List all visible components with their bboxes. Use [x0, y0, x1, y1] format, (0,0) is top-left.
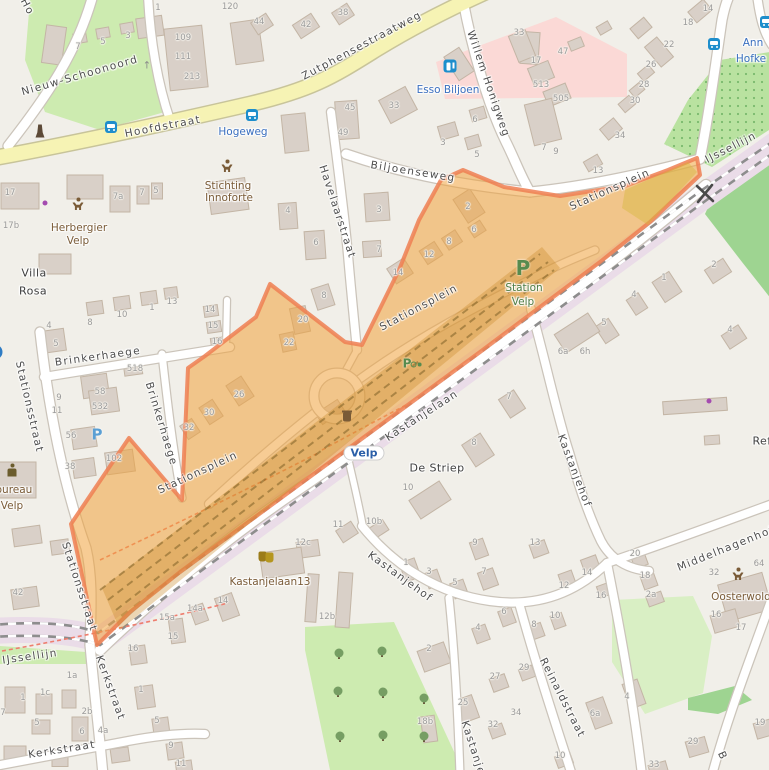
house-number: 6 — [472, 116, 477, 125]
house-number: 6 — [471, 226, 476, 235]
house-number: 7 — [376, 246, 381, 255]
arrow-up-icon — [143, 54, 151, 73]
poi-label-herbergier: Herbergier — [51, 223, 107, 234]
house-number: 12c — [295, 539, 311, 548]
house-number: 44 — [254, 18, 265, 27]
parking-blue-icon — [92, 425, 103, 444]
house-number: 42 — [13, 589, 24, 598]
house-number: 32 — [184, 424, 195, 433]
transit-label-esso-biljoen: Esso Biljoen — [417, 85, 480, 96]
house-number: 29 — [519, 664, 530, 673]
house-number: 5 — [474, 151, 479, 160]
transit-label-hogeweg: Hogeweg — [218, 127, 267, 138]
house-number: 26 — [234, 391, 245, 400]
house-number: 12 — [559, 582, 570, 591]
map-label-velp: Velp — [512, 297, 534, 308]
house-number: 16 — [212, 338, 223, 347]
house-number: 1a — [67, 672, 78, 681]
map-label-brinkerhaege: Brinkerhaege — [143, 381, 178, 467]
map-label-stationsplein: Stationsplein — [378, 283, 459, 333]
map-label-kastanjehof: Kastanjehof — [366, 550, 435, 604]
house-number: 16 — [711, 611, 722, 620]
house-number: 12 — [424, 251, 435, 260]
house-number: 58 — [95, 388, 106, 397]
map-label-kerkstraat: Kerkstraat — [93, 654, 126, 722]
map-label-havelaarstraat: Havelaarstraat — [317, 164, 357, 260]
house-number: 518 — [127, 365, 143, 374]
bus-icon — [760, 16, 769, 28]
house-number: 4 — [624, 693, 629, 702]
house-number: 14a — [187, 605, 203, 614]
map-label-ijssellijn: IJssellijn — [2, 648, 59, 666]
house-number: 6a — [590, 710, 601, 719]
map-label-zutphensestraatweg: Zutphensestraatweg — [300, 10, 423, 82]
house-number: 1c — [40, 689, 50, 698]
bin-icon — [343, 413, 351, 422]
theater-icon — [259, 552, 274, 563]
label-layer: HoNieuw-SchoonoordHoofdstraatZutphensest… — [0, 0, 769, 770]
parking-circle-icon — [0, 345, 3, 360]
transit-label-ann: Ann — [743, 38, 764, 49]
house-number: 6 — [313, 239, 318, 248]
dot-purple-icon — [707, 399, 712, 404]
house-number: 120 — [222, 3, 238, 12]
house-number: 13 — [530, 539, 541, 548]
house-number: 32 — [709, 569, 720, 578]
house-number: 8 — [471, 439, 476, 448]
house-number: 11 — [176, 760, 187, 769]
map-label-stationsplein: Stationsplein — [568, 168, 651, 213]
bus-icon — [708, 38, 720, 50]
house-number: 10 — [117, 311, 128, 320]
house-number: 7 — [506, 393, 511, 402]
house-number: 16 — [128, 645, 139, 654]
house-number: 2 — [465, 203, 470, 212]
map-label-reinaldstraat: Reinaldstraat — [537, 656, 586, 739]
house-number: 7 — [541, 144, 546, 153]
house-number: 8 — [321, 292, 326, 301]
house-number: 17 — [5, 189, 16, 198]
person-icon — [221, 160, 234, 173]
parking-green-icon — [516, 256, 531, 280]
person-icon — [72, 198, 85, 211]
bus-icon — [105, 121, 117, 133]
map-label-station: Station — [505, 283, 542, 294]
house-number: 10 — [403, 484, 414, 493]
house-number: 1 — [661, 274, 666, 283]
house-number: 30 — [630, 97, 641, 106]
house-number: 6 — [79, 728, 84, 737]
house-number: 7a — [113, 193, 124, 202]
house-number: 2 — [711, 261, 716, 270]
house-number: 5 — [601, 319, 606, 328]
house-number: 5 — [154, 717, 159, 726]
house-number: 38 — [338, 9, 349, 18]
house-number: 5 — [100, 38, 105, 47]
map-label-stationsstraat: Stationsstraat — [13, 360, 44, 453]
house-number: 102 — [106, 455, 122, 464]
house-number: 3 — [426, 568, 431, 577]
bike-parking-icon — [403, 353, 412, 372]
house-number: 49 — [338, 129, 349, 138]
house-number: 11 — [52, 407, 63, 416]
map-label-de-striep: De Striep — [410, 463, 465, 474]
map-label-b: B — [715, 750, 728, 762]
house-number: 6a — [558, 348, 569, 357]
monument-icon — [36, 125, 45, 138]
house-number: 17b — [3, 222, 19, 231]
house-number: 213 — [184, 73, 200, 82]
house-number: 14 — [703, 5, 714, 14]
house-number: 8 — [87, 319, 92, 328]
house-number: 2b — [82, 708, 93, 717]
house-number: 3 — [125, 32, 130, 41]
poi-label-innoforte: Innoforte — [205, 193, 253, 204]
house-number: 14 — [218, 597, 229, 606]
house-number: 505 — [553, 95, 569, 104]
house-number: 9 — [553, 148, 558, 157]
house-number: 47 — [558, 48, 569, 57]
house-number: 14 — [205, 306, 216, 315]
house-number: 1 — [155, 4, 160, 13]
house-number: 42 — [301, 21, 312, 30]
house-number: 8 — [531, 621, 536, 630]
house-number: 1 — [138, 686, 143, 695]
map-label-villa: Villa — [21, 268, 46, 279]
house-number: 7 — [139, 189, 144, 198]
house-number: 9 — [472, 539, 477, 548]
map-viewport[interactable]: HoNieuw-SchoonoordHoofdstraatZutphensest… — [0, 0, 769, 770]
house-number: 25 — [458, 699, 469, 708]
house-number: 532 — [92, 403, 108, 412]
house-number: 7 — [75, 43, 80, 52]
map-label-stationsstraat: Stationsstraat — [60, 541, 99, 633]
house-number: 33 — [514, 29, 525, 38]
house-number: 22 — [284, 339, 295, 348]
person-icon — [732, 568, 745, 581]
map-label-ref: Ref — [753, 436, 769, 447]
house-number: 13 — [593, 167, 604, 176]
house-number: 10 — [550, 612, 561, 621]
house-number: 38 — [65, 463, 76, 472]
house-number: 15 — [208, 322, 219, 331]
fuel-icon — [444, 60, 457, 73]
house-number: 17 — [736, 624, 747, 633]
police-icon — [6, 464, 19, 477]
house-number: 12b — [319, 613, 335, 622]
house-number: 13 — [167, 298, 178, 307]
house-number: 15 — [168, 633, 179, 642]
map-label-kastanjehof: Kastanjehof — [555, 433, 593, 509]
house-number: 6h — [580, 348, 591, 357]
poi-label-politiebureau: Politiebureau — [0, 485, 32, 496]
house-number: 5 — [34, 719, 39, 728]
house-number: 20 — [630, 550, 641, 559]
house-number: 5 — [452, 579, 457, 588]
map-label-ijssellijn: IJssellijn — [704, 131, 759, 166]
house-number: 4 — [285, 207, 290, 216]
house-number: 20 — [298, 316, 309, 325]
station-label-velp: Velp — [344, 447, 383, 460]
poi-label-kastanjelaan13: Kastanjelaan13 — [230, 577, 311, 588]
house-number: 4 — [46, 322, 51, 331]
house-number: 15a — [159, 614, 175, 623]
poi-label-oosterwold: Oosterwold — [711, 592, 769, 603]
poi-label-stichting: Stichting — [205, 181, 251, 192]
poi-label-velp: Velp — [67, 236, 89, 247]
house-number: 3 — [376, 206, 381, 215]
house-number: 18b — [417, 718, 433, 727]
map-label-ho: Ho — [18, 0, 35, 17]
house-number: 26 — [646, 61, 657, 70]
house-number: 2 — [426, 645, 431, 654]
house-number: 56 — [66, 432, 77, 441]
house-number: 64 — [754, 560, 765, 569]
map-label-hoofdstraat: Hoofdstraat — [124, 114, 202, 139]
house-number: 11 — [333, 521, 344, 530]
map-label-rosa: Rosa — [19, 286, 47, 297]
dot-purple-icon — [43, 201, 48, 206]
map-label-kerkstraat: Kerkstraat — [28, 739, 97, 760]
house-number: 30 — [204, 409, 215, 418]
house-number: 33 — [389, 102, 400, 111]
house-number: 33 — [649, 761, 660, 770]
house-number: 34 — [615, 132, 626, 141]
house-number: 5 — [53, 340, 58, 349]
house-number: 17 — [531, 57, 542, 66]
house-number: 16 — [596, 592, 607, 601]
house-number: 27 — [490, 673, 501, 682]
house-number: 18 — [683, 19, 694, 28]
house-number: 28 — [639, 81, 650, 90]
house-number: 18 — [640, 572, 651, 581]
house-number: 19 — [755, 719, 766, 728]
house-number: 4 — [727, 326, 732, 335]
poi-label-velp: Velp — [1, 501, 23, 512]
house-number: 1 — [403, 559, 408, 568]
house-number: 8 — [446, 238, 451, 247]
transit-label-hofke: Hofke — [736, 54, 766, 65]
house-number: 14 — [393, 269, 404, 278]
house-number: 111 — [175, 53, 191, 62]
house-number: 5 — [153, 187, 158, 196]
bus-icon — [246, 109, 258, 121]
house-number: 10b — [366, 518, 382, 527]
house-number: 513 — [533, 81, 549, 90]
house-number: 7 — [0, 709, 5, 718]
house-number: 1 — [20, 694, 25, 703]
house-number: 10 — [555, 752, 566, 761]
house-number: 4 — [631, 291, 636, 300]
house-number: 2a — [646, 591, 657, 600]
map-label-biljoenseweg: Biljoenseweg — [370, 160, 457, 184]
house-number: 32 — [488, 721, 499, 730]
house-number: 7 — [481, 568, 486, 577]
house-number: 4a — [98, 727, 109, 736]
house-number: 22 — [664, 41, 675, 50]
house-number: 45 — [345, 104, 356, 113]
map-label-nieuw-schoonoord: Nieuw-Schoonoord — [20, 54, 139, 97]
house-number: 9 — [168, 742, 173, 751]
map-label-kastanjelaan: Kastanjelaan — [384, 389, 461, 444]
house-number: 14 — [582, 569, 593, 578]
house-number: 6 — [501, 608, 506, 617]
house-number: 1 — [149, 304, 154, 313]
house-number: 109 — [175, 34, 191, 43]
house-number: 4 — [475, 624, 480, 633]
house-number: 9 — [56, 394, 61, 403]
house-number: 34 — [511, 709, 522, 718]
house-number: 3 — [440, 139, 445, 148]
house-number: 29 — [688, 738, 699, 747]
